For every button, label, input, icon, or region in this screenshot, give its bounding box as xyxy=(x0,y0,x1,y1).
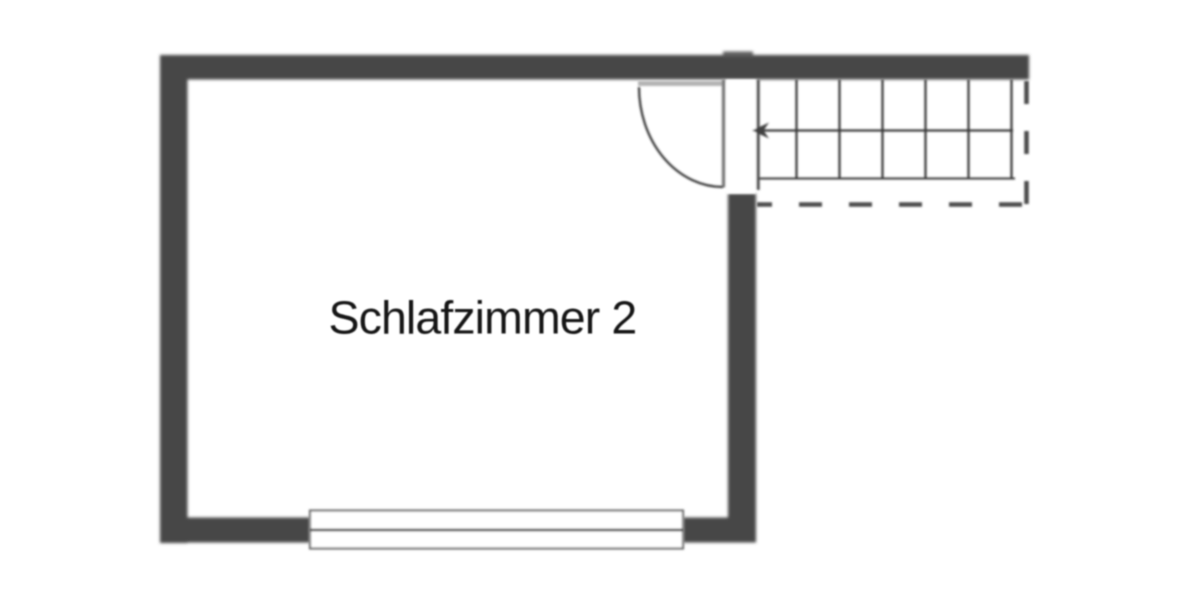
svg-text:Schlafzimmer 2: Schlafzimmer 2 xyxy=(329,292,637,344)
